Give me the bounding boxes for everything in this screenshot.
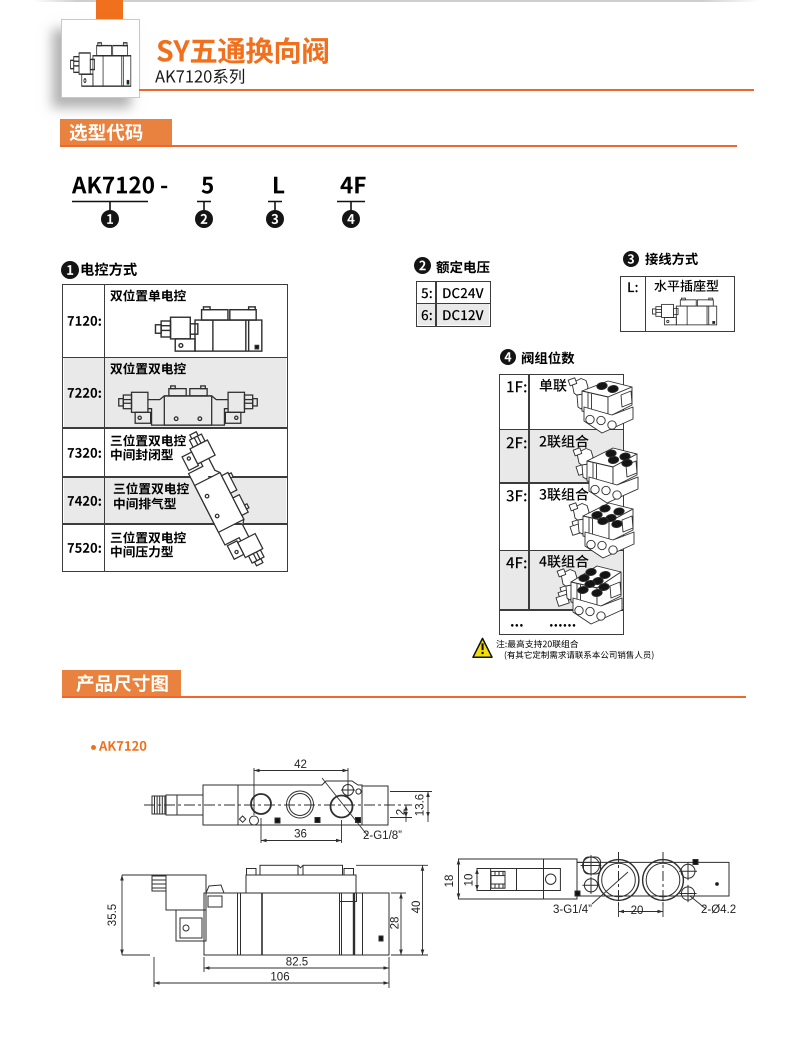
svg-text:2-Ø4.2: 2-Ø4.2 bbox=[701, 904, 736, 916]
svg-text:28: 28 bbox=[390, 917, 402, 930]
svg-text:2: 2 bbox=[396, 809, 408, 815]
svg-text:10: 10 bbox=[464, 874, 476, 887]
svg-text:42: 42 bbox=[294, 759, 307, 771]
svg-text:3-G1/4”: 3-G1/4” bbox=[553, 904, 592, 916]
svg-text:82.5: 82.5 bbox=[286, 957, 308, 969]
svg-text:13.6: 13.6 bbox=[415, 794, 427, 816]
svg-text:18: 18 bbox=[444, 875, 456, 888]
svg-text:40: 40 bbox=[411, 901, 423, 914]
svg-text:20: 20 bbox=[631, 905, 644, 917]
svg-text:2-G1/8”: 2-G1/8” bbox=[363, 830, 402, 842]
svg-text:106: 106 bbox=[270, 972, 289, 984]
svg-text:36: 36 bbox=[294, 829, 307, 841]
svg-text:35.5: 35.5 bbox=[107, 904, 119, 926]
